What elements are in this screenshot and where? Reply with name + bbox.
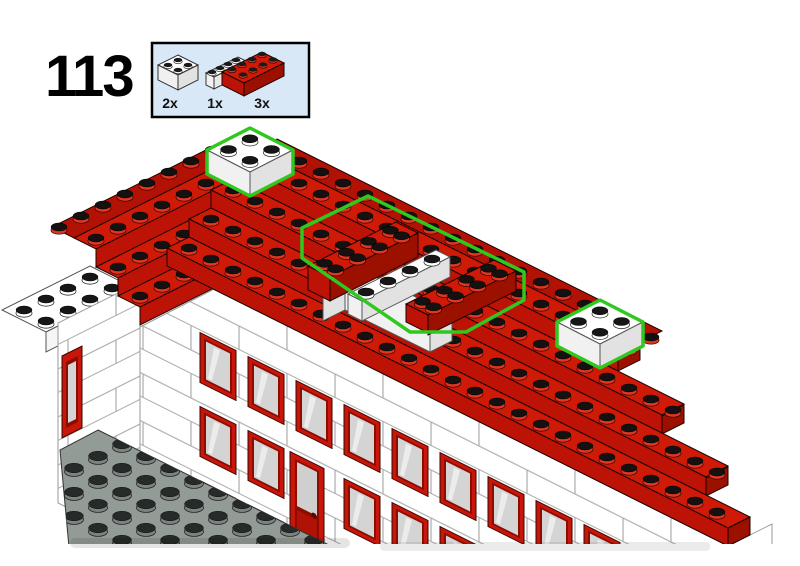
stud-icon xyxy=(65,463,84,476)
stud-icon xyxy=(335,321,351,332)
stud-icon xyxy=(137,547,156,560)
stud-icon xyxy=(161,511,180,524)
stud-icon xyxy=(73,212,89,223)
stud-icon xyxy=(269,248,285,259)
stud-icon xyxy=(38,317,54,328)
ground-shadow-right xyxy=(380,542,710,551)
stud-icon xyxy=(394,232,410,243)
stud-icon xyxy=(154,201,170,212)
part-qty-white-2x2: 2x xyxy=(162,95,178,111)
stud-icon xyxy=(643,475,659,486)
stud-icon xyxy=(511,369,527,380)
stud-icon xyxy=(161,559,180,566)
stud-icon xyxy=(492,270,508,281)
stud-icon xyxy=(709,468,725,479)
stud-icon xyxy=(665,446,681,457)
stud-icon xyxy=(372,243,388,254)
stud-icon xyxy=(65,511,84,524)
stud-icon xyxy=(423,365,439,376)
stud-icon xyxy=(313,230,329,241)
stud-icon xyxy=(41,475,60,488)
stud-icon xyxy=(599,373,615,384)
stud-icon xyxy=(89,475,108,488)
stud-icon xyxy=(203,215,219,226)
stud-icon xyxy=(113,511,132,524)
stud-icon xyxy=(185,547,204,560)
stud-icon xyxy=(643,333,659,344)
stud-icon xyxy=(132,292,148,303)
building-illustration xyxy=(2,128,772,566)
stud-icon xyxy=(65,487,84,500)
stud-icon xyxy=(577,442,593,453)
stud-icon xyxy=(113,463,132,476)
stud-icon xyxy=(621,384,637,395)
stud-icon xyxy=(17,487,36,500)
stud-icon xyxy=(328,265,344,276)
stud-icon xyxy=(313,168,329,179)
stud-icon xyxy=(209,511,228,524)
stud-icon xyxy=(161,487,180,500)
stud-icon xyxy=(139,179,155,190)
stud-icon xyxy=(335,179,351,190)
stud-icon xyxy=(313,190,329,201)
stud-icon xyxy=(233,547,252,560)
stud-icon xyxy=(185,523,204,536)
ground-shadow-left xyxy=(70,538,350,548)
stud-icon xyxy=(621,424,637,435)
stud-icon xyxy=(291,179,307,190)
stud-icon xyxy=(137,475,156,488)
stud-icon xyxy=(350,254,366,265)
stud-icon xyxy=(89,523,108,536)
stud-icon xyxy=(38,295,54,306)
stud-icon xyxy=(533,380,549,391)
stud-icon xyxy=(533,340,549,351)
part-qty-red-2x4: 3x xyxy=(254,95,270,111)
stud-icon xyxy=(60,284,76,295)
stud-icon xyxy=(51,223,67,234)
stud-icon xyxy=(489,358,505,369)
stud-icon xyxy=(357,332,373,343)
stud-icon xyxy=(89,499,108,512)
instruction-page: 113 2x 1x 3x xyxy=(0,0,800,566)
stud-icon xyxy=(665,486,681,497)
stud-icon xyxy=(269,288,285,299)
tall-window xyxy=(62,346,82,438)
stud-icon xyxy=(82,273,98,284)
stud-icon xyxy=(467,387,483,398)
stud-icon xyxy=(577,402,593,413)
stud-icon xyxy=(198,179,214,190)
stud-icon xyxy=(533,300,549,311)
stud-icon xyxy=(621,464,637,475)
stud-icon xyxy=(209,559,228,566)
stud-icon xyxy=(555,289,571,300)
stud-icon xyxy=(533,278,549,289)
stud-icon xyxy=(183,157,199,168)
stud-icon xyxy=(489,398,505,409)
stud-icon xyxy=(687,457,703,468)
stud-icon xyxy=(181,244,197,255)
stud-icon xyxy=(95,201,111,212)
stud-icon xyxy=(281,547,300,560)
stud-icon xyxy=(89,451,108,464)
stud-icon xyxy=(247,197,263,208)
stud-icon xyxy=(225,266,241,277)
stud-icon xyxy=(154,281,170,292)
stud-icon xyxy=(401,354,417,365)
stud-icon xyxy=(41,499,60,512)
stud-icon xyxy=(132,212,148,223)
stud-icon xyxy=(426,303,442,314)
stud-icon xyxy=(110,263,126,274)
stud-icon xyxy=(291,299,307,310)
step-number: 113 xyxy=(45,44,133,109)
stud-icon xyxy=(467,347,483,358)
stud-icon xyxy=(470,281,486,292)
stud-icon xyxy=(132,252,148,263)
stud-icon xyxy=(643,435,659,446)
stud-icon xyxy=(643,395,659,406)
stud-icon xyxy=(117,190,133,201)
stud-icon xyxy=(247,277,263,288)
stud-icon xyxy=(533,420,549,431)
stud-icon xyxy=(247,237,263,248)
stud-icon xyxy=(511,409,527,420)
stud-icon xyxy=(709,508,725,519)
part-qty-white-1x4: 1x xyxy=(207,95,223,111)
stud-icon xyxy=(185,499,204,512)
stud-icon xyxy=(88,234,104,245)
stud-icon xyxy=(113,487,132,500)
stud-icon xyxy=(16,306,32,317)
stud-icon xyxy=(176,190,192,201)
stud-icon xyxy=(448,292,464,303)
stud-icon xyxy=(137,523,156,536)
stud-icon xyxy=(380,277,396,288)
stud-icon xyxy=(137,499,156,512)
stud-icon xyxy=(402,266,418,277)
stud-icon xyxy=(161,168,177,179)
stud-icon xyxy=(379,343,395,354)
stud-icon xyxy=(357,212,373,223)
stud-icon xyxy=(445,376,461,387)
stud-icon xyxy=(687,497,703,508)
stud-icon xyxy=(233,523,252,536)
stud-icon xyxy=(203,255,219,266)
stud-icon xyxy=(555,391,571,402)
stud-icon xyxy=(269,208,285,219)
stud-icon xyxy=(599,453,615,464)
stud-icon xyxy=(665,406,681,417)
stud-icon xyxy=(511,329,527,340)
stud-icon xyxy=(225,226,241,237)
stud-icon xyxy=(599,413,615,424)
stud-icon xyxy=(424,255,440,266)
stud-icon xyxy=(555,431,571,442)
stud-icon xyxy=(257,559,276,566)
stud-icon xyxy=(110,223,126,234)
parts-callout: 2x 1x 3x xyxy=(152,43,309,117)
